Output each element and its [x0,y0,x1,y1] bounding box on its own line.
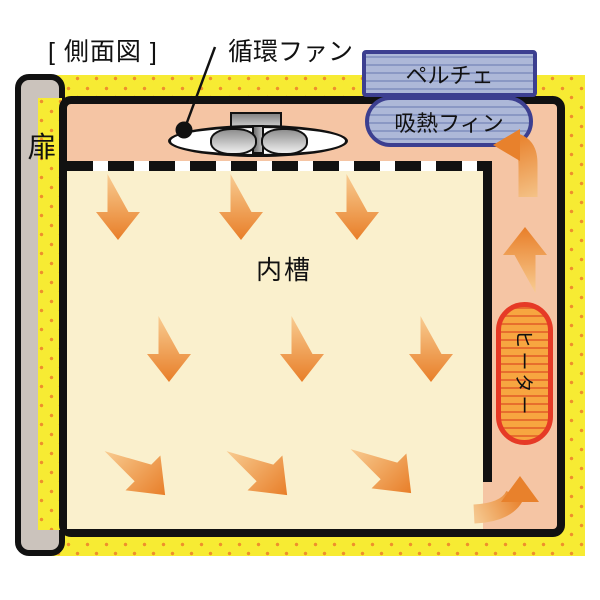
tank-top-vent-dashed-line [67,161,492,171]
tank-right-wall [483,161,492,482]
inner-tank-area [67,161,483,529]
heater-element: ヒーター [496,302,553,445]
fan-blade-icon [210,128,257,155]
door-label: 扉 [24,124,60,166]
peltier-label: ペルチェ [405,58,493,90]
circulation-fan-label: 循環ファン [228,32,353,68]
inner-tank-label: 内槽 [256,250,312,287]
diagram-title: [ 側面図 ] [48,32,158,68]
heat-absorption-fin: 吸熱フィン [365,96,533,147]
fan-blade-icon [261,128,308,155]
heat-fin-label: 吸熱フィン [394,106,504,138]
heater-label: ヒーター [511,329,538,417]
peltier-module: ペルチェ [362,50,537,97]
